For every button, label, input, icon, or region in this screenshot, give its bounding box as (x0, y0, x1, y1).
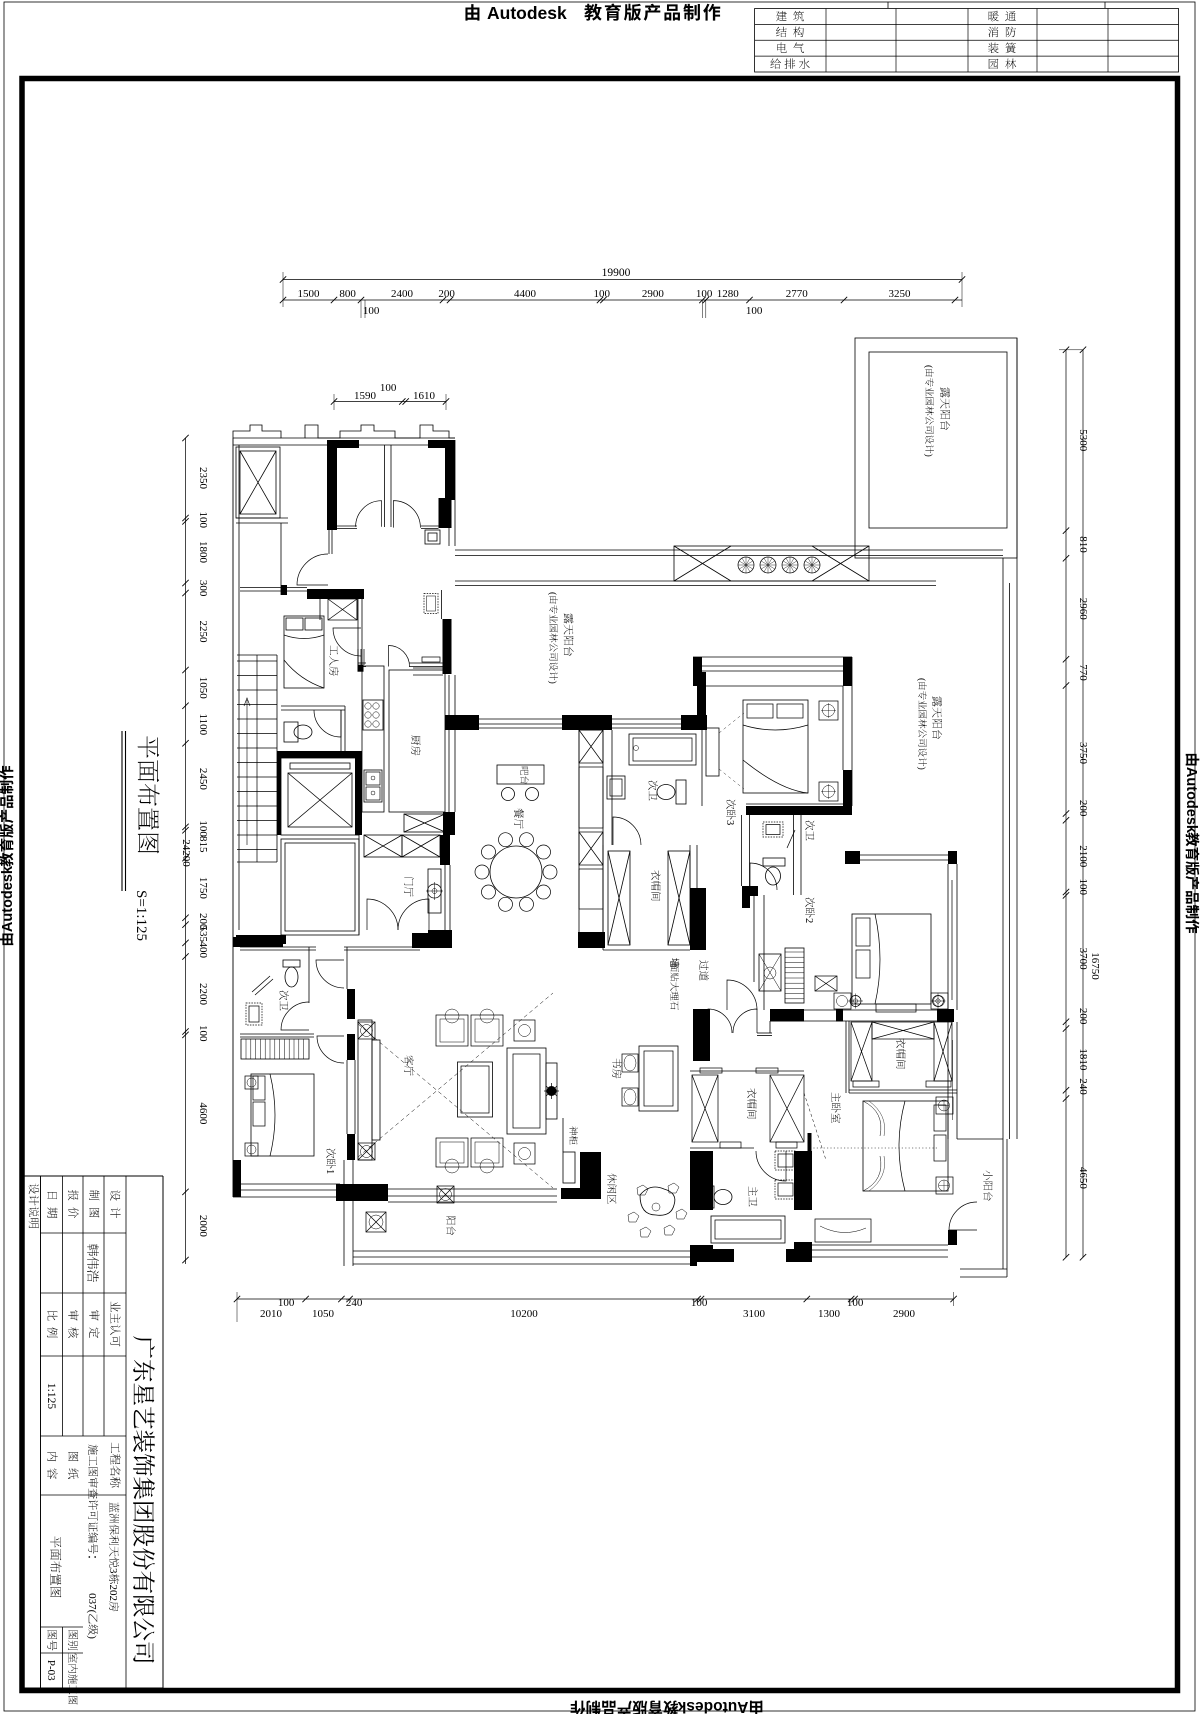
svg-text:1800: 1800 (197, 541, 209, 564)
svg-text:2000: 2000 (197, 1215, 209, 1238)
svg-text:100: 100 (380, 382, 397, 394)
svg-text:100: 100 (847, 1297, 864, 1309)
svg-text:100: 100 (696, 288, 713, 300)
svg-text:100: 100 (691, 1297, 708, 1309)
svg-text:Autodesk: Autodesk (1183, 767, 1199, 834)
svg-text:2900: 2900 (642, 288, 665, 300)
svg-text:3100: 3100 (743, 1308, 766, 1320)
svg-text:1050: 1050 (312, 1308, 335, 1320)
svg-text:2200: 2200 (197, 983, 209, 1006)
svg-text:(: ( (916, 678, 927, 681)
svg-text:): ) (86, 1635, 98, 1639)
svg-text:): ) (916, 767, 927, 770)
svg-text:100: 100 (197, 1025, 209, 1042)
svg-text:1610: 1610 (413, 390, 436, 402)
svg-text:535: 535 (197, 926, 209, 943)
svg-text:1300: 1300 (818, 1308, 841, 1320)
svg-text:200: 200 (438, 288, 455, 300)
svg-text:240: 240 (346, 1297, 363, 1309)
svg-text:Autodesk: Autodesk (487, 3, 567, 23)
svg-text:2010: 2010 (260, 1308, 283, 1320)
svg-text:100: 100 (278, 1297, 295, 1309)
svg-text:1590: 1590 (354, 390, 377, 402)
svg-text:815: 815 (197, 836, 209, 853)
svg-text:2350: 2350 (197, 467, 209, 490)
svg-text:1050: 1050 (197, 677, 209, 700)
svg-text:4400: 4400 (514, 288, 537, 300)
svg-text:3: 3 (107, 1568, 119, 1574)
svg-text:100: 100 (594, 288, 611, 300)
svg-text:2770: 2770 (786, 288, 809, 300)
svg-text:1750: 1750 (197, 877, 209, 900)
svg-text:3: 3 (724, 820, 735, 825)
svg-text:202: 202 (107, 1585, 119, 1602)
svg-text:2250: 2250 (197, 621, 209, 644)
svg-text:1:125: 1:125 (45, 1383, 57, 1409)
svg-text:100: 100 (197, 512, 209, 529)
svg-text:2900: 2900 (893, 1308, 916, 1320)
svg-text:P-03: P-03 (45, 1660, 57, 1681)
svg-text:S=1:125: S=1:125 (133, 890, 149, 941)
svg-text:1500: 1500 (298, 288, 321, 300)
svg-text:4600: 4600 (197, 1102, 209, 1125)
svg-text:1100: 1100 (197, 714, 209, 736)
svg-text:19900: 19900 (602, 267, 631, 279)
svg-text:037(: 037( (86, 1593, 98, 1614)
svg-text:2400: 2400 (391, 288, 414, 300)
svg-text:16750: 16750 (1089, 952, 1101, 980)
svg-text:): ) (547, 681, 558, 684)
svg-text:100: 100 (197, 820, 209, 837)
svg-text:Autodesk: Autodesk (0, 865, 16, 932)
svg-text:400: 400 (197, 942, 209, 959)
svg-text:(: ( (547, 592, 558, 595)
svg-text:1: 1 (324, 1169, 335, 1174)
svg-text:3250: 3250 (889, 288, 912, 300)
svg-text:1280: 1280 (717, 288, 740, 300)
svg-text:(: ( (923, 365, 934, 368)
svg-text:24200: 24200 (180, 839, 192, 867)
svg-text:Autodesk: Autodesk (677, 1698, 748, 1714)
svg-text:100: 100 (746, 305, 763, 317)
svg-text:): ) (923, 454, 934, 457)
svg-text:2: 2 (803, 918, 814, 923)
svg-text:100: 100 (363, 305, 380, 317)
svg-text:2450: 2450 (197, 768, 209, 791)
svg-text:800: 800 (339, 288, 356, 300)
svg-text:300: 300 (197, 580, 209, 597)
svg-text:10200: 10200 (510, 1308, 538, 1320)
svg-text:：: ： (86, 1554, 98, 1565)
